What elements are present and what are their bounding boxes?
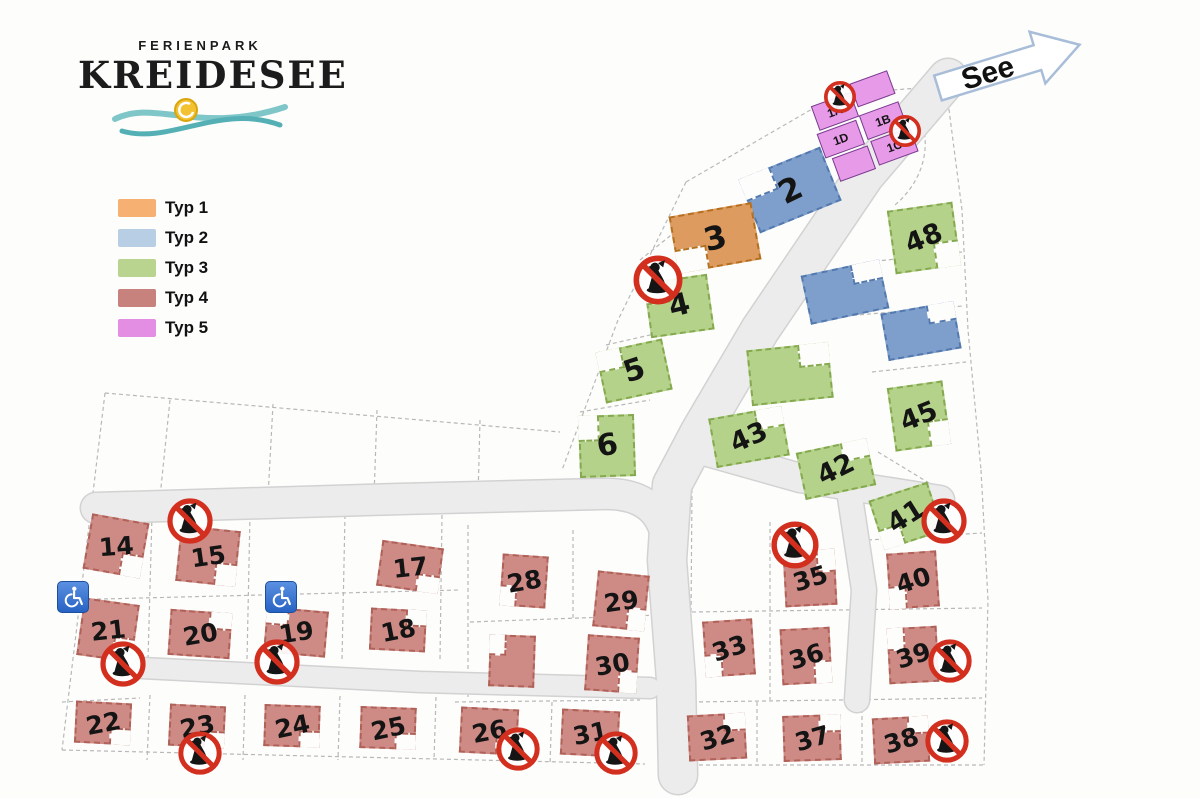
building-25: 25 xyxy=(359,706,416,750)
no-dogs-icon xyxy=(823,80,857,114)
building-label: 5 xyxy=(619,354,648,389)
legend-item: Typ 3 xyxy=(118,253,208,283)
building-33: 33 xyxy=(702,618,756,677)
building-notch xyxy=(926,301,957,325)
no-dogs-icon xyxy=(632,254,684,306)
road xyxy=(850,497,864,700)
building-label: 20 xyxy=(181,619,220,650)
legend: Typ 1Typ 2Typ 3Typ 4Typ 5 xyxy=(118,193,208,343)
legend-label: Typ 5 xyxy=(165,318,208,338)
no-dogs-icon xyxy=(927,638,973,684)
no-dogs-icon xyxy=(888,114,922,148)
building-36: 36 xyxy=(780,627,833,686)
building-22: 22 xyxy=(74,701,132,746)
building-notch xyxy=(797,342,830,368)
building-24: 24 xyxy=(263,704,320,748)
legend-item: Typ 1 xyxy=(118,193,208,223)
building-48: 48 xyxy=(887,202,961,275)
building-label: 6 xyxy=(594,429,620,462)
building-label: 22 xyxy=(84,707,123,738)
building-29: 29 xyxy=(592,570,650,631)
building-label: 30 xyxy=(593,649,632,680)
no-dogs-icon xyxy=(166,497,214,545)
legend-item: Typ 4 xyxy=(118,283,208,313)
no-dogs-icon xyxy=(920,497,968,545)
legend-swatch xyxy=(118,289,156,307)
building-label: 17 xyxy=(391,553,428,582)
building-14: 14 xyxy=(83,513,150,578)
building-label: 28 xyxy=(505,566,544,597)
building-unlabeled xyxy=(488,634,536,688)
building-37: 37 xyxy=(782,714,842,762)
road xyxy=(142,668,650,688)
logo: FERIENPARK KREIDESEE xyxy=(78,38,322,150)
no-dogs-icon xyxy=(593,730,639,776)
legend-item: Typ 2 xyxy=(118,223,208,253)
no-dogs-icon xyxy=(495,726,541,772)
building-notch xyxy=(489,634,507,656)
building-label: 40 xyxy=(893,563,934,598)
logo-ferienpark: FERIENPARK xyxy=(78,38,322,53)
no-dogs-icon xyxy=(99,640,147,688)
building-unlabeled xyxy=(746,342,833,406)
no-dogs-icon xyxy=(924,718,970,764)
building-label: 32 xyxy=(697,720,738,754)
building-40: 40 xyxy=(886,550,940,609)
legend-label: Typ 4 xyxy=(165,288,208,308)
building-30: 30 xyxy=(584,634,640,693)
building-32: 32 xyxy=(687,713,747,762)
legend-swatch xyxy=(118,319,156,337)
building-label: 25 xyxy=(368,712,407,744)
wheelchair-icon xyxy=(57,581,89,613)
building-label: 33 xyxy=(709,631,750,666)
logo-wave-graphic xyxy=(100,97,300,145)
see-label: See xyxy=(958,50,1019,97)
legend-swatch xyxy=(118,199,156,217)
building-label: 24 xyxy=(272,710,311,742)
building-label: 18 xyxy=(379,614,418,645)
building-45: 45 xyxy=(887,380,951,451)
building-18: 18 xyxy=(369,608,427,653)
legend-swatch xyxy=(118,259,156,277)
building-17: 17 xyxy=(376,540,444,594)
building-label: 38 xyxy=(881,723,922,757)
building-label: 37 xyxy=(792,721,832,755)
building-20: 20 xyxy=(167,609,232,659)
no-dogs-icon xyxy=(253,638,301,686)
legend-item: Typ 5 xyxy=(118,313,208,343)
no-dogs-icon xyxy=(177,730,223,776)
building-38: 38 xyxy=(872,716,930,765)
building-label: 29 xyxy=(602,586,640,616)
legend-label: Typ 1 xyxy=(165,198,208,218)
legend-label: Typ 2 xyxy=(165,228,208,248)
building-label: 15 xyxy=(189,541,227,571)
no-dogs-icon xyxy=(770,520,820,570)
site-map: See FERIENPARK KREIDESEE Typ 1Typ 2Typ 3… xyxy=(0,0,1200,798)
wheelchair-icon xyxy=(265,581,297,613)
building-28: 28 xyxy=(499,553,549,608)
building-label: 2 xyxy=(773,171,807,210)
legend-label: Typ 3 xyxy=(165,258,208,278)
logo-kreidesee: KREIDESEE xyxy=(78,53,322,97)
building-6: 6 xyxy=(578,414,636,478)
legend-swatch xyxy=(118,229,156,247)
building-label: 14 xyxy=(98,532,134,559)
